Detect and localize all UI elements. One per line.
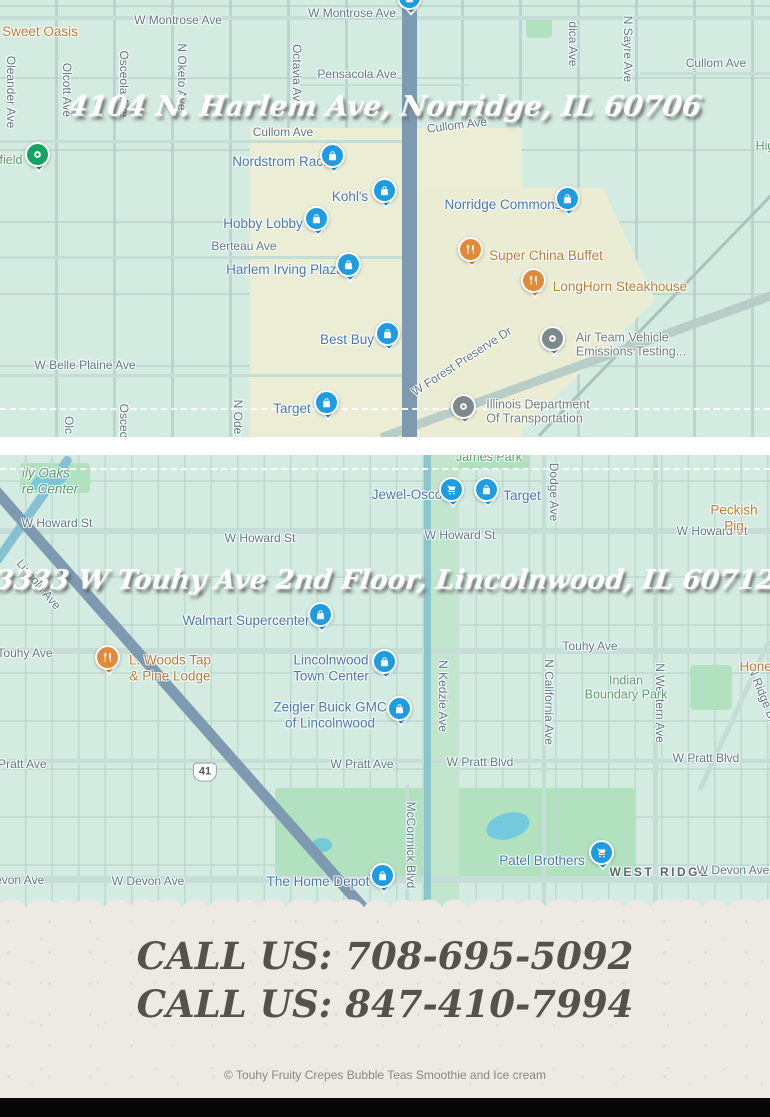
poi-label[interactable]: Hobby Lobby [223,216,303,232]
shopping-pin[interactable] [555,186,581,217]
civic-pin-icon [540,326,565,351]
shopping-bag-pin-icon [304,206,329,231]
poi-label[interactable]: Indian Boundary Park [585,674,668,703]
street-label: N Ode [230,400,244,435]
road-cullom-ave [0,140,410,143]
poi-label[interactable]: WEST RIDGE [609,866,710,880]
street-label: W Howard St [22,517,93,531]
poi-label[interactable]: Target [273,401,311,417]
street-label: dica Ave [565,21,579,66]
shopping-pin[interactable] [375,321,401,352]
footer: CALL US: 708-695-5092 CALL US: 847-410-7… [0,912,770,1098]
poi-label[interactable]: Air Team Vehicle Emissions Testing... [576,331,686,360]
street-label: W Belle Plaine Ave [34,359,135,373]
poi-label[interactable]: L. Woods Tap & Pine Lodge [129,652,211,683]
street-label: Osceo [116,404,130,437]
shopping-pin[interactable] [304,206,330,237]
poi-label[interactable]: Patel Brothers [499,853,585,869]
street-label: Oleander Ave [3,56,17,129]
shopping-pin[interactable] [372,178,398,209]
shopping-cart-pin-icon [439,477,464,502]
shopping-bag-pin-icon [372,649,397,674]
torn-paper-edge [0,888,770,912]
road-cullom-ave-east [640,72,770,75]
street-label: Olc [61,416,75,434]
shopping-pin[interactable] [314,390,340,421]
boundary-dashed-line [0,468,770,470]
restaurant-pin[interactable] [95,645,121,676]
poi-label[interactable]: Walmart Supercenter [182,613,309,629]
norridge-map[interactable]: 4104 N. Harlem Ave, Norridge, IL 60706 W… [0,0,770,437]
lincolnwood-map[interactable]: 3333 W Touhy Ave 2nd Floor, Lincolnwood,… [0,455,770,912]
street-label: W Devon Ave [112,875,184,889]
shopping-bag-pin-icon [387,696,412,721]
street-label: Dodge Ave [546,463,560,522]
restaurant-pin-icon [95,645,120,670]
street-label: N Ridge Blvd [744,665,770,735]
street-label: Cullom Ave [253,126,313,140]
road-belle-plaine-ave [0,374,410,377]
street-label: W Pratt Blvd [447,756,514,770]
shopping-pin[interactable] [308,602,334,633]
poi-label[interactable]: Target [503,488,541,504]
poi-label[interactable]: Kohl's [332,189,368,205]
street-label: Touhy Ave [562,640,617,654]
poi-label[interactable]: field [0,153,22,167]
poi-label[interactable]: Peckish Pig [710,502,757,533]
restaurant-pin-icon [458,237,483,262]
copyright-text: © Touhy Fruity Crepes Bubble Teas Smooth… [0,1068,770,1082]
restaurant-pin-icon [521,268,546,293]
poi-label[interactable]: Sweet Oasis [2,24,78,40]
shopping-pin[interactable] [387,696,413,727]
restaurant-pin[interactable] [521,268,547,299]
shopping-bag-pin-icon [314,390,339,415]
poi-label[interactable]: LongHorn Steakhouse [553,279,687,295]
road-harlem-ave [402,0,417,437]
street-label: W Howard St [225,532,296,546]
route-shield-41: 41 [193,763,217,782]
shopping-bag-pin-icon [308,602,333,627]
poi-label[interactable]: Jewel-Osco [372,487,443,503]
poi-label[interactable]: Nordstrom Rack [232,154,330,170]
shopping-pin[interactable] [372,649,398,680]
poi-label[interactable]: Illinois Department Of Transportation [486,398,590,427]
civic-pin-icon [451,394,476,419]
street-label: W Devon Ave [697,864,769,878]
civic-pin[interactable] [540,326,566,357]
shopping-cart-pin-icon [589,840,614,865]
map2-address-overlay: 3333 W Touhy Ave 2nd Floor, Lincolnwood,… [0,565,770,596]
street-label: W Pratt Ave [0,758,47,772]
map-divider-gap [0,437,770,455]
map1-address-overlay: 4104 N. Harlem Ave, Norridge, IL 60706 [67,90,704,123]
street-label: McCormick Blvd [403,802,417,889]
park-pin[interactable] [25,142,51,173]
poi-label[interactable]: Zeigler Buick GMC of Lincolnwood [273,699,386,730]
street-label: W Howard St [425,529,496,543]
shopping-bag-pin-icon [372,178,397,203]
street-label: Pensacola Ave [317,68,396,82]
poi-label[interactable]: James Park [456,455,522,464]
grocery-pin[interactable] [439,477,465,508]
civic-pin[interactable] [451,394,477,425]
street-label: N California Ave [541,659,555,745]
street-label: W Montrose Ave [134,14,222,28]
street-label: N Kedzie Ave [435,660,449,732]
road-pensacola-ave [300,84,470,86]
shopping-bag-pin-icon [375,321,400,346]
shopping-pin[interactable] [474,477,500,508]
shopping-bag-pin-icon [397,0,422,10]
shopping-bag-pin-icon [370,863,395,888]
poi-label[interactable]: Norridge Commons [444,197,561,213]
poi-label[interactable]: Lincolnwood Town Center [293,652,369,683]
shopping-pin[interactable] [320,143,346,174]
street-label: Cullom Ave [686,57,746,71]
poi-label[interactable]: ily Oaks re Center [22,465,78,496]
phone-number-2[interactable]: CALL US: 847-410-7994 [0,982,770,1026]
poi-label[interactable]: Best Buy [320,332,374,348]
indian-boundary-park-area [690,665,732,710]
street-label: Berteau Ave [211,240,276,254]
street-label: W Montrose Ave [308,7,396,21]
shopping-bag-pin-icon [555,186,580,211]
shopping-bag-pin-icon [320,143,345,168]
north-shore-channel [424,455,431,912]
park-pin-icon [25,142,50,167]
street-label: W Pratt Ave [330,758,393,772]
phone-number-1[interactable]: CALL US: 708-695-5092 [0,934,770,978]
poi-label[interactable]: Harlem Irving Plaza [226,262,344,278]
street-label: N Sayre Ave [620,16,634,82]
bottom-bar [0,1098,770,1117]
street-label: Touhy Ave [0,647,53,661]
shopping-bag-pin-icon [336,252,361,277]
shopping-bag-pin-icon [474,477,499,502]
shopping-pin[interactable] [336,252,362,283]
shopping-pin[interactable] [397,0,423,16]
street-label: W Devon Ave [0,874,44,888]
grocery-pin[interactable] [589,840,615,871]
poi-label[interactable]: Hig [756,139,770,153]
restaurant-pin[interactable] [458,237,484,268]
poi-label[interactable]: Honey [739,659,770,675]
page: 4104 N. Harlem Ave, Norridge, IL 60706 W… [0,0,770,1117]
street-label: W Pratt Blvd [673,752,740,766]
poi-label[interactable]: Super China Buffet [489,248,603,264]
